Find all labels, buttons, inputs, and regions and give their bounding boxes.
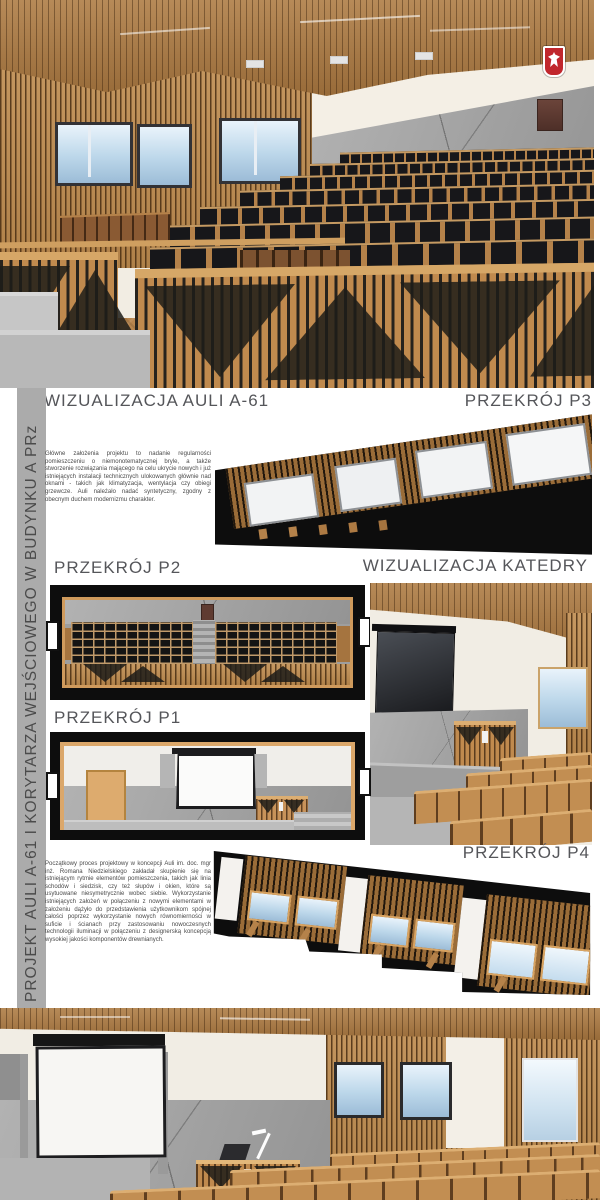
section-title-viz-katedry: WIZUALIZACJA KATEDRY (363, 556, 588, 576)
p2-interior (62, 597, 353, 688)
window (400, 1062, 452, 1120)
p2-plaque (201, 604, 214, 621)
screen-casing (33, 1034, 165, 1046)
section-title-p3: PRZEKRÓJ P3 (465, 391, 592, 411)
section-p2-image (50, 585, 365, 700)
section-title-p4: PRZEKRÓJ P4 (463, 843, 590, 863)
memorial-plaque (537, 99, 563, 131)
katedra-wide-render-image (0, 1008, 600, 1200)
window (334, 1062, 384, 1118)
sidebar-project-title: PROJEKT AULI A-61 I KORYTARZA WEJŚCIOWEG… (17, 388, 46, 1002)
p2-stairs (193, 620, 215, 666)
chair-mark (258, 528, 267, 539)
eagle-icon (548, 52, 560, 69)
window-mullion (254, 121, 257, 175)
window (55, 122, 133, 186)
chair-mark (348, 522, 357, 533)
concrete-step (0, 330, 150, 388)
window (506, 423, 592, 486)
section-p3-image (215, 413, 592, 556)
window (219, 118, 301, 184)
p2-zigzag (121, 666, 165, 682)
p2-seat-grid (215, 622, 337, 664)
p4-content (210, 852, 592, 998)
ceiling-light-strip (60, 1016, 130, 1018)
p2-seat-grid (71, 622, 193, 664)
window (486, 939, 538, 980)
process-paragraph: Początkowy proces projektowy w koncepcji… (45, 861, 211, 945)
air-vent (330, 56, 348, 64)
p3-content (215, 413, 592, 556)
screen-post (20, 1054, 28, 1174)
window (540, 945, 592, 986)
window-mullion (88, 125, 91, 177)
window (334, 458, 402, 512)
section-title-p2: PRZEKRÓJ P2 (54, 558, 181, 578)
lectern-zigzag (488, 727, 514, 745)
railing-zigzag (400, 280, 560, 374)
section-p4-image (210, 848, 592, 998)
railing-zigzag (265, 286, 425, 380)
p1-steps (294, 812, 354, 830)
window (522, 1058, 578, 1142)
p1-projection-screen (176, 753, 256, 809)
p2-door-tab (46, 621, 59, 651)
p1-pilaster (160, 754, 175, 788)
laptop (219, 1144, 250, 1160)
p2-zigzag (223, 664, 267, 682)
window (538, 667, 588, 729)
chair-mark (288, 526, 297, 537)
air-vent (415, 52, 433, 60)
p4-concrete-stairs (218, 952, 246, 986)
section-title-viz-auli: WIZUALIZACJA AULI A-61 (44, 391, 269, 411)
p1-lectern-zigzag (258, 800, 278, 813)
p1-door (86, 770, 126, 826)
window (244, 473, 319, 526)
section-title-p1: PRZEKRÓJ P1 (54, 708, 181, 728)
projection-screen (36, 1045, 167, 1158)
aula-render-image (0, 0, 594, 388)
p2-zigzag (83, 664, 127, 682)
p1-interior (60, 742, 355, 830)
chair-mark (318, 524, 327, 535)
wall-gap (446, 1024, 504, 1148)
railing-front (135, 263, 594, 388)
p2-slat-band (65, 664, 350, 685)
p1-door-tab (46, 772, 59, 800)
window (137, 124, 192, 188)
polish-eagle-emblem (543, 46, 565, 77)
katedra-render-image (370, 583, 592, 845)
railing-zigzag (55, 270, 135, 336)
p2-zigzag (261, 666, 305, 682)
window (413, 919, 456, 953)
p1-door-tab (358, 768, 371, 796)
air-vent (246, 60, 264, 68)
window (368, 914, 411, 948)
lectern-zigzag (456, 727, 482, 745)
presentation-board: WIZUALIZACJA AULI A-61 PRZEKRÓJ P3 PROJE… (0, 0, 600, 1200)
window (294, 895, 339, 929)
section-p1-image (50, 732, 365, 840)
p2-wood-box (337, 626, 350, 662)
p2-wood-box (65, 628, 71, 660)
chair-mark (378, 520, 387, 531)
projection-screen (375, 631, 455, 719)
intro-paragraph: Główne założenia projektu to nadanie reg… (45, 451, 211, 504)
railing-zigzag (145, 284, 295, 378)
p1-logo-mark (279, 802, 283, 811)
prz-logo-mark (482, 731, 488, 743)
window (415, 441, 493, 499)
